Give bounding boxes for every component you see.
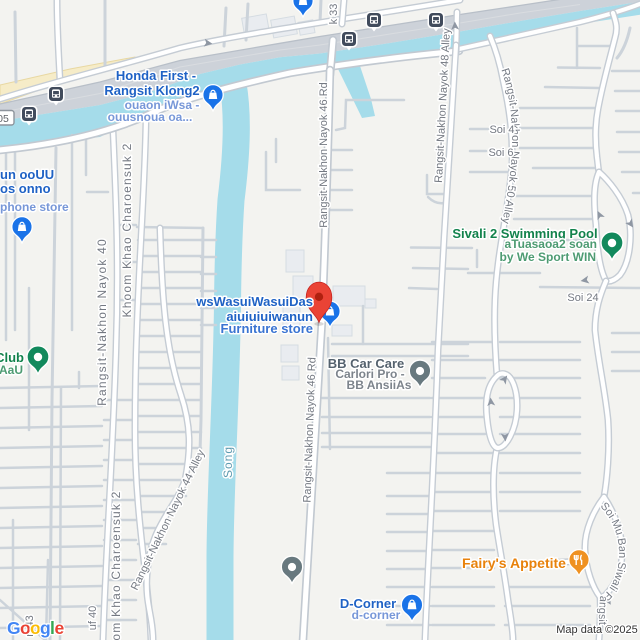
svg-text:Soi 24: Soi 24 <box>567 292 598 304</box>
svg-text:Khoom Khao Charoensuk 2: Khoom Khao Charoensuk 2 <box>120 142 134 317</box>
svg-text:Furniture store: Furniture store <box>221 321 313 336</box>
svg-text:Rangsit Klong2: Rangsit Klong2 <box>104 83 199 98</box>
svg-text:k 33: k 33 <box>328 4 340 25</box>
svg-text:phone store: phone store <box>0 200 69 214</box>
svg-text:uf 40: uf 40 <box>87 606 99 630</box>
svg-text:un ooUU: un ooUU <box>0 167 54 182</box>
svg-text:os onno: os onno <box>0 181 51 196</box>
svg-text:Map data ©2025: Map data ©2025 <box>556 624 638 636</box>
svg-text:d-corner: d-corner <box>352 608 401 622</box>
svg-text:by We Sport WIN: by We Sport WIN <box>500 250 596 264</box>
svg-text:aTuasaoa2 soan: aTuasaoa2 soan <box>505 237 597 251</box>
svg-text:Rangsit-Nakhon Nayok 40: Rangsit-Nakhon Nayok 40 <box>95 238 109 406</box>
svg-text:BB AnsiiAs: BB AnsiiAs <box>347 378 412 392</box>
svg-text:Khoom Khao Charoensuk 2: Khoom Khao Charoensuk 2 <box>109 490 123 640</box>
svg-text:05: 05 <box>0 113 9 125</box>
svg-text:G: G <box>7 618 21 638</box>
svg-text:Honda First -: Honda First - <box>116 68 196 83</box>
svg-text:wsWasuiWasuiDas: wsWasuiWasuiDas <box>195 294 313 309</box>
svg-text:Soi 4: Soi 4 <box>489 124 514 136</box>
svg-text:Soi 6: Soi 6 <box>488 147 513 159</box>
svg-text:ouusnoua oa...: ouusnoua oa... <box>108 110 193 124</box>
svg-text:Fairy's Appetite: Fairy's Appetite <box>462 555 566 571</box>
svg-text:e: e <box>55 618 65 638</box>
svg-text:Song: Song <box>221 446 235 478</box>
svg-text:AaU: AaU <box>0 363 23 377</box>
svg-text:Rangsit-Nakhon Nayok 46 Rd: Rangsit-Nakhon Nayok 46 Rd <box>318 82 330 228</box>
